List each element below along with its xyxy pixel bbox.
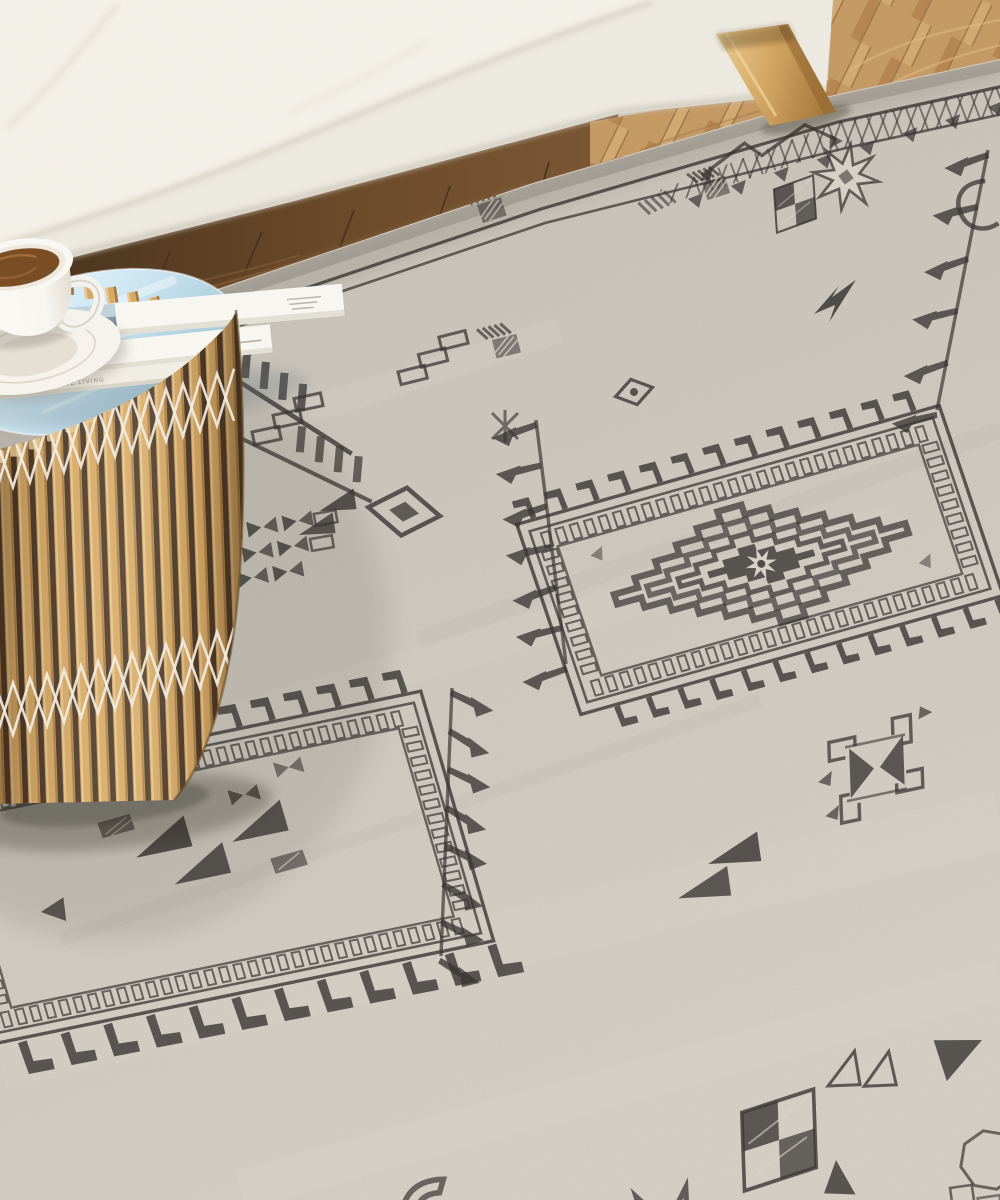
living-room-photo: ART OF CREATIVE LIVINGImpressionism — [0, 0, 1000, 1200]
